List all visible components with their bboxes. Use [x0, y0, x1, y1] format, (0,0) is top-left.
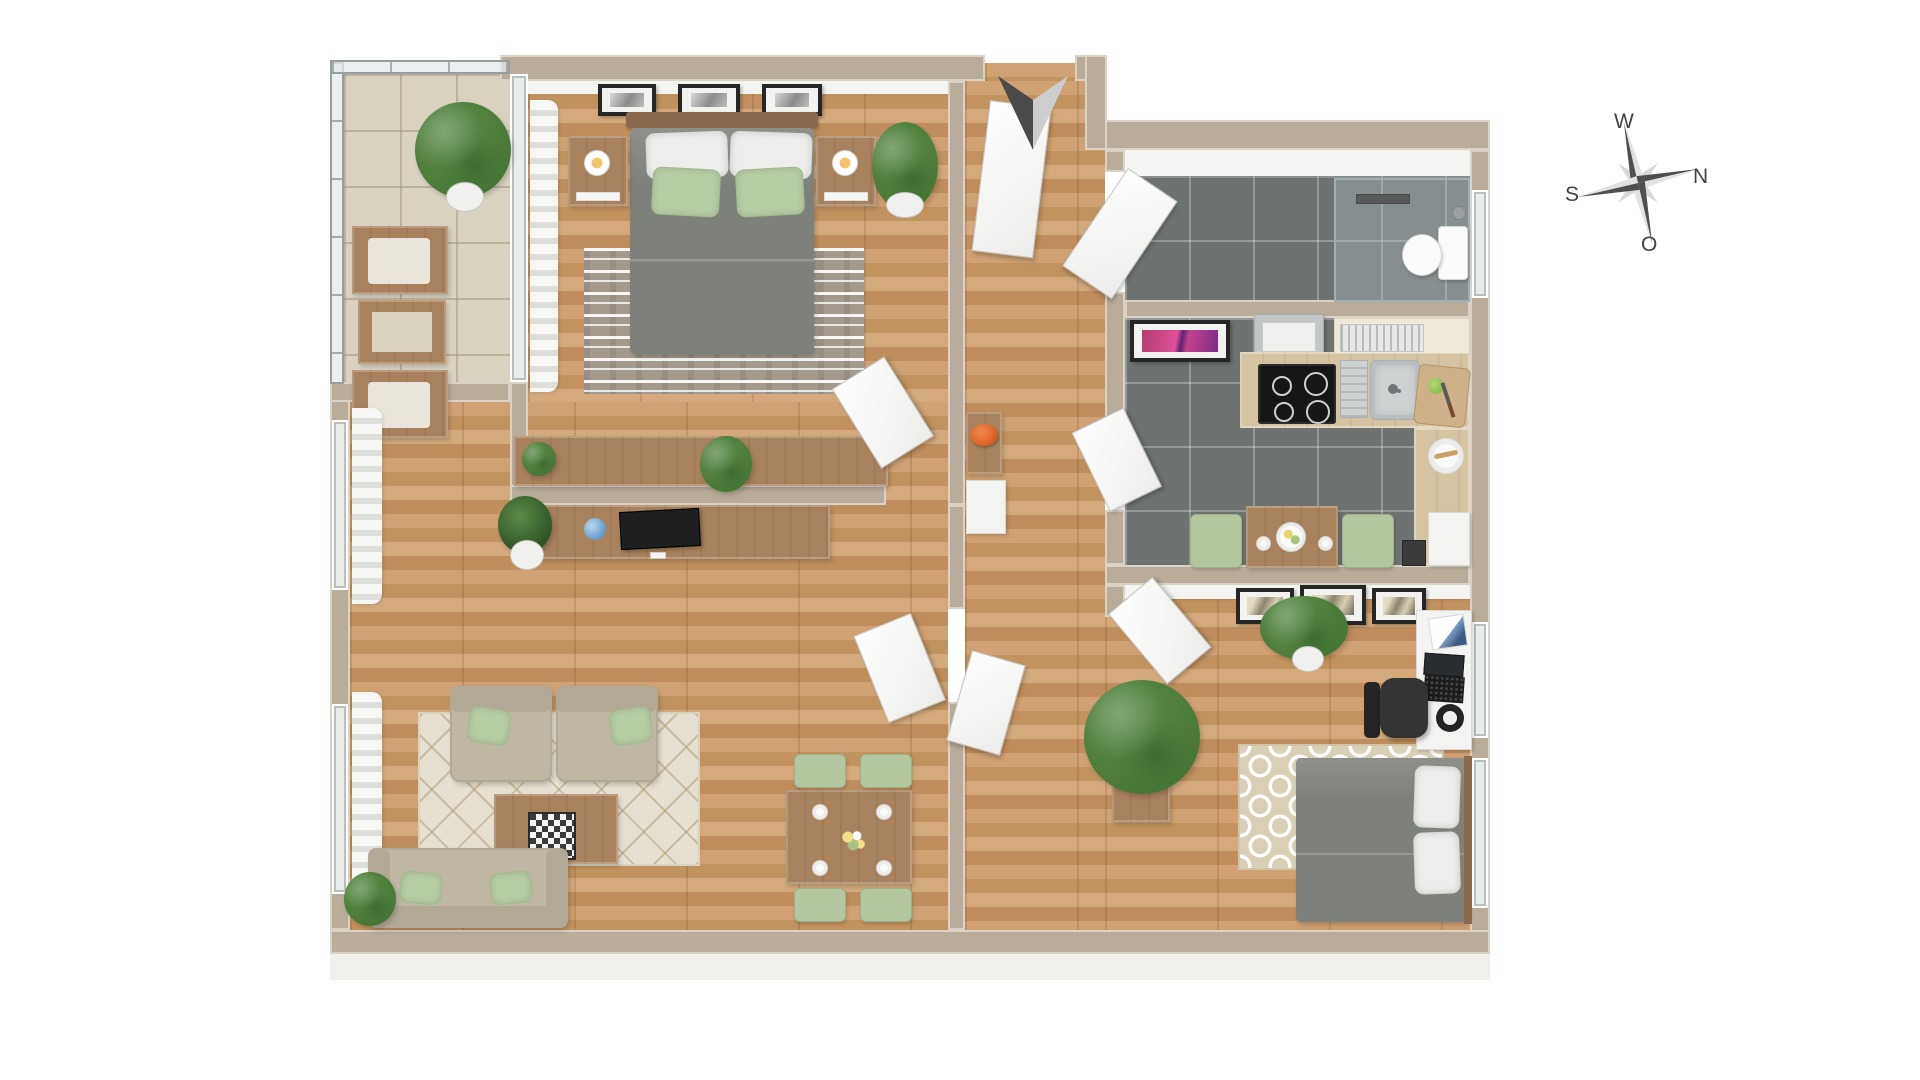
kitchen-chair-left: [1190, 514, 1242, 568]
bed-pillow-green-left: [651, 166, 721, 217]
wall-top-right-section: [1105, 120, 1490, 150]
kitchen-plate-right: [1318, 536, 1333, 551]
armchair-left-cushion: [466, 705, 513, 746]
dish-rack: [1340, 324, 1424, 352]
bed-headboard: [626, 112, 818, 128]
wall-bedroom-south: [510, 485, 886, 505]
dining-chair-top-left: [794, 754, 846, 788]
kitchen-chair-right: [1342, 514, 1394, 568]
armchair-left-back: [450, 686, 552, 712]
dining-flowers: [840, 828, 866, 854]
nightstand-left-candle: [584, 150, 610, 176]
cooktop-burner-2: [1304, 372, 1328, 396]
laptop-screen: [1423, 653, 1464, 678]
wall-bedroom-hallway: [948, 81, 965, 505]
hall-cabinet: [966, 480, 1006, 534]
balcony-side-table-top: [372, 312, 432, 352]
balcony-door-window: [510, 74, 528, 382]
bedroom-plant-pot: [886, 192, 924, 218]
office-chair-seat: [1380, 678, 1428, 738]
tv: [619, 508, 701, 550]
fridge: [1428, 512, 1470, 566]
balcony-chair-top-seat: [368, 238, 430, 284]
wall-bottom-outer: [330, 930, 1490, 954]
office-chair-back: [1364, 682, 1380, 738]
armchair-right-cushion: [608, 705, 655, 746]
wall-top-step: [1085, 55, 1107, 150]
kitchen-small-appliance: [1402, 540, 1426, 566]
compass-label-east: O: [1641, 233, 1658, 257]
bedroom-wall-art-2-image: [691, 93, 727, 107]
kitchen-plate-left: [1256, 536, 1271, 551]
living-window-upper: [332, 420, 348, 590]
nightstand-left-drawer: [576, 192, 620, 201]
bathroom-north-wall-face: [1125, 150, 1470, 176]
office-big-plant: [1084, 680, 1200, 794]
range-hood-top: [1262, 322, 1316, 352]
wall-living-hallway-upper: [948, 505, 965, 609]
toilet-bowl: [1402, 234, 1442, 276]
compass-label-west: W: [1614, 110, 1634, 134]
laptop-keyboard: [1423, 675, 1465, 704]
kitchen-wall-art-image: [1142, 330, 1218, 352]
building-base-band: [330, 954, 1490, 980]
cooktop-burner-1: [1272, 376, 1292, 396]
office-bed-headboard: [1464, 756, 1472, 924]
sideboard-plant-right: [700, 436, 752, 492]
bath-window-right: [1472, 190, 1488, 298]
nightstand-right-candle: [832, 150, 858, 176]
kitchen-food-plate: [1276, 522, 1306, 552]
bed-pillow-green-right: [735, 166, 805, 217]
bedroom-wall-art-3-image: [775, 93, 809, 107]
balcony-railing-left: [330, 60, 344, 384]
dining-chair-bottom-right: [860, 888, 912, 922]
palm-plant-pot: [446, 182, 484, 212]
living-curtain-upper: [352, 408, 382, 604]
tv-remote: [650, 552, 666, 559]
hall-orange-bowl: [970, 424, 998, 446]
sideboard-plant-small: [522, 442, 556, 476]
wall-kitchen-south: [1105, 565, 1470, 585]
dining-plate-3: [812, 860, 828, 876]
wall-top-bedroom: [500, 55, 985, 81]
entrance-arrow-icon: [996, 74, 1070, 152]
sofa-back: [368, 906, 568, 928]
nightstand-right-drawer: [824, 192, 868, 201]
dining-plate-4: [876, 860, 892, 876]
living-corner-plant: [344, 872, 396, 926]
shower-drain: [1356, 194, 1410, 204]
toilet-tank: [1438, 226, 1468, 280]
magazine: [1428, 614, 1468, 651]
wall-hallway-bath-a: [1105, 150, 1125, 172]
bedroom-curtain: [530, 100, 558, 392]
cutting-board: [1413, 363, 1471, 428]
office-window-right-upper: [1472, 622, 1488, 738]
office-plant-pot: [1292, 646, 1324, 672]
cooktop-burner-3: [1274, 402, 1294, 422]
dining-plate-2: [876, 804, 892, 820]
office-wall-art-3-image: [1383, 597, 1415, 615]
desk-lamp-shade: [1443, 711, 1457, 725]
living-window-lower: [332, 704, 348, 894]
wall-hallway-bath-b: [1105, 292, 1125, 420]
sofa-cushion-left: [398, 870, 443, 906]
blue-decor-ball: [584, 518, 606, 540]
tv-plant-pot: [510, 540, 544, 570]
compass-label-south: S: [1565, 183, 1580, 207]
sink-drainboard: [1340, 360, 1368, 418]
balcony-railing-top: [330, 60, 510, 74]
bedroom-wall-art-1-image: [610, 93, 644, 107]
office-window-right-lower: [1472, 758, 1488, 908]
sofa-arm-right: [546, 848, 568, 928]
cooktop-burner-4: [1306, 400, 1330, 424]
floorplan-canvas: W N S O: [0, 0, 1920, 1080]
sink-faucet: [1388, 384, 1398, 394]
wall-hallway-kitchen: [1105, 510, 1125, 565]
office-bed-pillow-2: [1413, 831, 1461, 895]
office-bed-pillow-1: [1413, 765, 1461, 829]
dining-plate-1: [812, 804, 828, 820]
compass-label-north: N: [1693, 165, 1709, 189]
dining-chair-bottom-left: [794, 888, 846, 922]
sofa-cushion-right: [488, 870, 533, 906]
kitchen-wall-art: [1130, 320, 1230, 362]
dining-chair-top-right: [860, 754, 912, 788]
shower-head-icon: [1452, 206, 1466, 220]
